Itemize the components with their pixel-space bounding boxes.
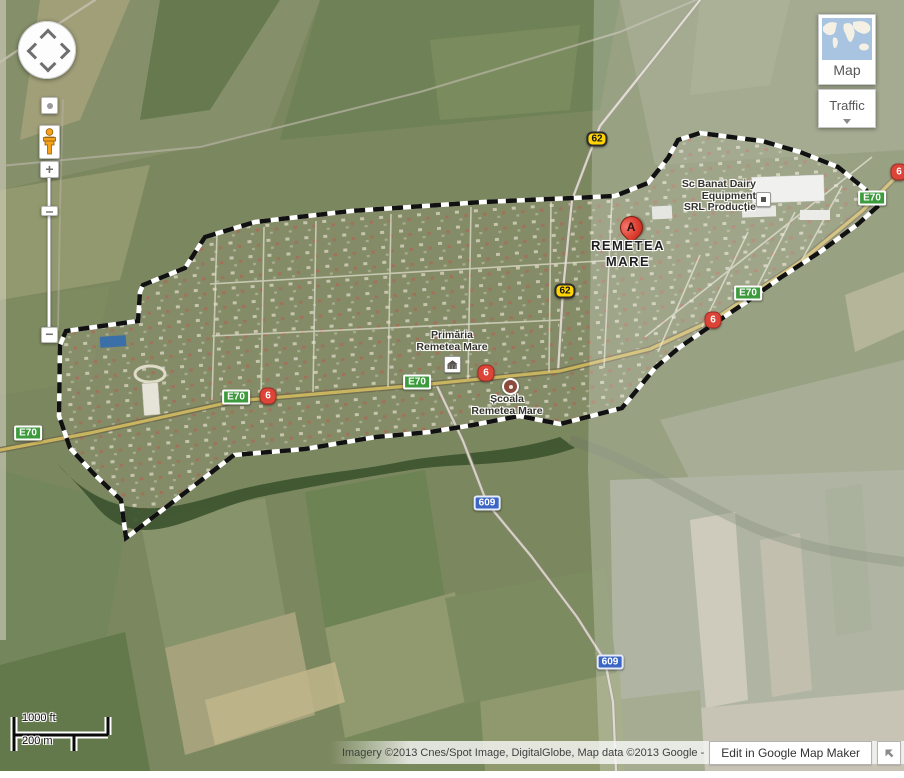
- marker-a-label: A: [620, 217, 641, 237]
- my-location-button[interactable]: [41, 97, 58, 114]
- route-shield-609: 609: [597, 655, 624, 670]
- map-type-button[interactable]: Map: [818, 14, 876, 85]
- map-canvas[interactable]: E70 E70 E70 E70 E70 6 6 6 6 62 62 609 60…: [0, 0, 904, 771]
- town-label-remetea-mare: REMETEA MARE: [568, 238, 688, 270]
- traffic-label: Traffic: [819, 96, 875, 116]
- town-hall-icon[interactable]: [444, 356, 461, 373]
- caret-down-icon: [843, 119, 851, 124]
- traffic-layer-button[interactable]: Traffic: [818, 89, 876, 128]
- pegman-street-view-button[interactable]: [39, 125, 60, 159]
- attribution-bar: Imagery ©2013 Cnes/Spot Image, DigitalGl…: [0, 741, 904, 764]
- pegman-icon: [40, 126, 59, 158]
- map-type-label: Map: [819, 60, 875, 80]
- route-shield-e70: E70: [858, 191, 886, 206]
- route-shield-609: 609: [474, 496, 501, 511]
- route-shield-e70: E70: [14, 426, 42, 441]
- pan-down-arrow-icon[interactable]: [40, 56, 57, 73]
- pan-control[interactable]: [18, 21, 76, 79]
- scale-imperial-label: 1000 ft: [22, 712, 56, 724]
- map-maker-arrow-button[interactable]: [877, 741, 901, 765]
- zoom-out-button[interactable]: −: [41, 327, 58, 343]
- poi-label-banat-dairy[interactable]: Sc Banat Dairy Equipment SRL Producție: [664, 179, 756, 214]
- pan-left-arrow-icon[interactable]: [27, 43, 44, 60]
- poi-label-primaria[interactable]: Primăria Remetea Mare: [402, 330, 502, 376]
- route-shield-e70: E70: [734, 286, 762, 301]
- google-maps-window: E70 E70 E70 E70 E70 6 6 6 6 62 62 609 60…: [0, 0, 904, 778]
- zoom-in-button[interactable]: +: [40, 161, 59, 178]
- route-shield-62: 62: [554, 284, 575, 299]
- route-shield-6: 6: [891, 164, 904, 181]
- arrow-up-left-icon: [882, 746, 896, 760]
- world-map-thumbnail-icon: [822, 18, 872, 60]
- edit-in-map-maker-button[interactable]: Edit in Google Map Maker: [709, 741, 872, 765]
- pan-right-arrow-icon[interactable]: [54, 43, 71, 60]
- route-shield-6: 6: [260, 388, 277, 405]
- route-shield-62: 62: [586, 132, 607, 147]
- attribution-text: Imagery ©2013 Cnes/Spot Image, DigitalGl…: [342, 747, 704, 759]
- route-shield-6: 6: [705, 312, 722, 329]
- route-shield-e70: E70: [403, 375, 431, 390]
- factory-poi-icon[interactable]: [756, 192, 771, 207]
- pan-up-arrow-icon[interactable]: [40, 29, 57, 46]
- zoom-slider-handle[interactable]: [41, 206, 58, 216]
- route-shield-e70: E70: [222, 390, 250, 405]
- poi-label-scoala[interactable]: Școala Remetea Mare: [455, 394, 559, 417]
- satellite-imagery[interactable]: [0, 0, 904, 771]
- zoom-slider-track[interactable]: [47, 177, 51, 333]
